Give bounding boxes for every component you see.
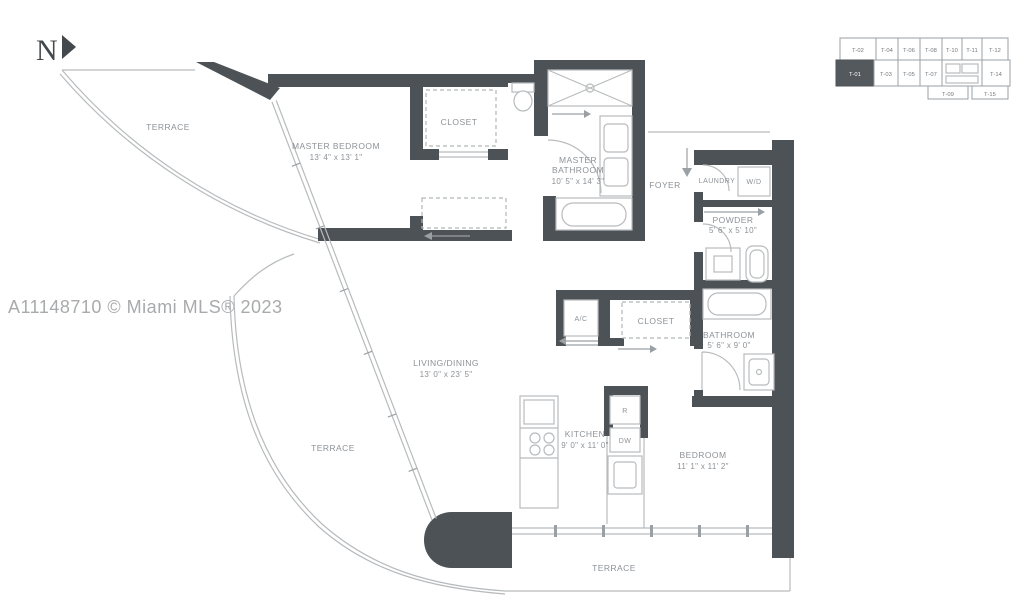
north-label: N bbox=[36, 34, 58, 67]
master-bedroom-label: MASTER BEDROOM bbox=[292, 141, 380, 151]
keyplan-unit-label: T-06 bbox=[903, 48, 915, 54]
master-bathroom-dims: 10' 5" x 14' 3" bbox=[552, 177, 605, 186]
keyplan-unit-label: T-12 bbox=[989, 48, 1001, 54]
laundry-sliding-arrow-icon bbox=[758, 208, 765, 216]
watermark: A11148710 © Miami MLS® 2023 bbox=[8, 297, 283, 317]
wall-master-bedroom-top bbox=[268, 74, 416, 87]
wall-closet-left bbox=[410, 74, 423, 160]
window-mullions-bottom bbox=[554, 525, 749, 537]
keyplan-unit-label: T-14 bbox=[990, 72, 1003, 78]
toilet-bowl bbox=[514, 91, 532, 111]
wall-powder-left-upper bbox=[694, 208, 703, 222]
powder-label: POWDER bbox=[713, 215, 754, 225]
master-bedroom-dims: 13' 4" x 13' 1" bbox=[310, 153, 363, 162]
wall-master-bedroom-bottom bbox=[318, 228, 420, 241]
keyplan-unit-label: T-02 bbox=[852, 48, 864, 54]
keyplan-unit-label: T-15 bbox=[984, 92, 996, 98]
north-arrow: N bbox=[36, 34, 76, 67]
living-dining-label: LIVING/DINING bbox=[413, 358, 479, 368]
second-closet-dashed bbox=[422, 198, 506, 228]
terrace-left-top-edge bbox=[234, 254, 294, 296]
wall-laundry-powder-divider bbox=[700, 200, 774, 207]
north-arrow-icon bbox=[62, 35, 76, 59]
wall-master-bath-left bbox=[543, 196, 556, 241]
ac-sliding-door-line bbox=[566, 341, 598, 345]
terrace-left-label: TERRACE bbox=[311, 443, 355, 453]
terrace-outlines bbox=[60, 70, 790, 594]
wall-closet-bottom-stub bbox=[600, 338, 624, 346]
floor-plan-canvas: N A11148710 © Miami MLS® 2023 bbox=[0, 0, 1024, 616]
keyplan-unit-label: T-07 bbox=[925, 72, 937, 78]
closet-sliding-door bbox=[439, 152, 488, 157]
master-bathroom-label-2: BATHROOM bbox=[552, 165, 604, 175]
keyplan-unit-label: T-05 bbox=[903, 72, 915, 78]
keyplan-unit-label: T-11 bbox=[966, 48, 978, 54]
keyplan-unit-label: T-08 bbox=[925, 48, 937, 54]
wall-right-strip bbox=[772, 140, 794, 558]
master-closet-label: CLOSET bbox=[441, 117, 478, 127]
bedroom-label: BEDROOM bbox=[679, 450, 726, 460]
entry-arrow-icon bbox=[682, 168, 692, 177]
keyplan: T-02 T-04 T-06 T-08 T-10 T-11 T-12 T-01 … bbox=[836, 38, 1010, 99]
wall-shower-left bbox=[534, 60, 548, 136]
wall-closet-right bbox=[690, 290, 702, 346]
room-labels: TERRACE MASTER BEDROOM 13' 4" x 13' 1" C… bbox=[146, 117, 761, 573]
foyer-label: FOYER bbox=[649, 180, 681, 190]
laundry-label: LAUNDRY bbox=[699, 178, 735, 185]
wall-bedroom-left bbox=[640, 386, 648, 438]
floor-plan-page: N A11148710 © Miami MLS® 2023 bbox=[0, 0, 1024, 616]
kitchen-label: KITCHEN bbox=[565, 429, 605, 439]
wall-master-bath-right bbox=[632, 60, 645, 241]
wall-ac-closet-divider bbox=[598, 290, 610, 346]
ac-label: A/C bbox=[574, 316, 587, 323]
wall-shower-top bbox=[548, 60, 645, 70]
keyplan-unit-label: T-04 bbox=[881, 48, 894, 54]
shower-door-arrow-icon bbox=[584, 110, 591, 118]
keyplan-unit-label: T-10 bbox=[946, 48, 958, 54]
bathroom-label: BATHROOM bbox=[703, 330, 755, 340]
structural-column bbox=[424, 512, 512, 568]
wall-bathroom-bottom bbox=[692, 396, 774, 407]
terrace-top-label: TERRACE bbox=[146, 122, 190, 132]
refrigerator-label: R bbox=[622, 408, 628, 415]
wall-closet-bottom-left bbox=[423, 149, 439, 160]
master-bathroom-label-1: MASTER bbox=[559, 155, 597, 165]
terrace-top-railing bbox=[62, 70, 322, 240]
living-dining-dims: 13' 0" x 23' 5" bbox=[420, 370, 473, 379]
bathroom-door-swing bbox=[702, 352, 740, 390]
dishwasher-label: DW bbox=[619, 438, 632, 445]
powder-sink bbox=[746, 246, 768, 282]
terrace-top-railing-2 bbox=[60, 74, 320, 243]
wall-diagonal-top-left bbox=[196, 62, 280, 100]
hall-closet-label: CLOSET bbox=[638, 316, 675, 326]
window-wall-bottom bbox=[512, 528, 772, 534]
bedroom-dims: 11' 1" x 11' 2" bbox=[677, 462, 729, 471]
bathroom-dims: 5' 6" x 9' 0" bbox=[707, 341, 750, 350]
wall-ac-closet-top bbox=[556, 290, 702, 300]
keyplan-unit-label: T-09 bbox=[942, 92, 954, 98]
powder-toilet bbox=[706, 248, 740, 280]
kitchen-dims: 9' 0" x 11' 0" bbox=[561, 441, 608, 450]
washer-dryer-label: W/D bbox=[747, 179, 762, 186]
keyplan-unit-label-highlighted: T-01 bbox=[849, 72, 861, 78]
wall-closet-bottom-right bbox=[488, 149, 508, 160]
wall-powder-left-lower bbox=[694, 252, 703, 280]
powder-dims: 5' 6" x 5' 10" bbox=[709, 226, 757, 235]
keyplan-unit-label: T-03 bbox=[880, 72, 892, 78]
closet-sliding-arrow-icon bbox=[650, 345, 657, 353]
terrace-bottom-label: TERRACE bbox=[592, 563, 636, 573]
wall-closet-top bbox=[410, 74, 508, 87]
